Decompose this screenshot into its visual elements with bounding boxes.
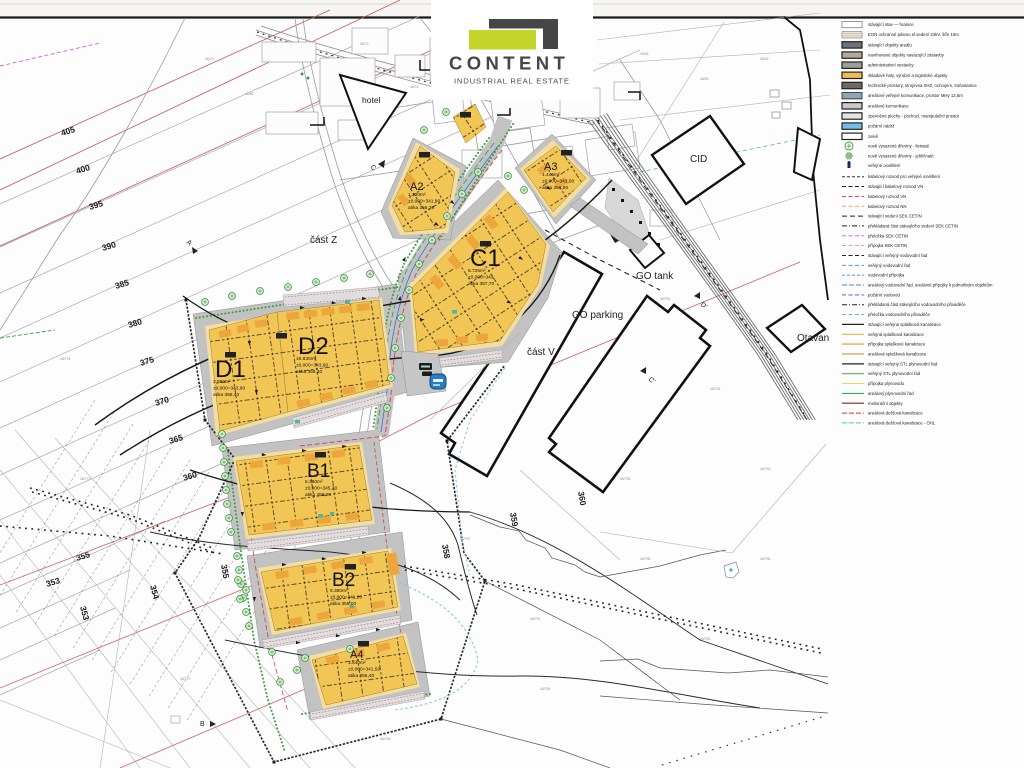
svg-text:atika 355,40: atika 355,40 — [348, 673, 374, 679]
svg-text:hotel: hotel — [362, 95, 381, 105]
svg-text:atika 355,00: atika 355,00 — [330, 601, 356, 607]
svg-text:46/764: 46/764 — [540, 687, 550, 691]
svg-text:stávající stav — hranice: stávající stav — hranice — [868, 22, 914, 27]
svg-text:skladové haly, výrobní a logis: skladové haly, výrobní a logistické obje… — [868, 73, 948, 78]
svg-text:46/64: 46/64 — [640, 52, 649, 56]
svg-text:D1: D1 — [215, 356, 246, 383]
svg-text:areálová dešťová kanalizace -: areálová dešťová kanalizace - OHL — [868, 420, 936, 425]
svg-text:A3: A3 — [544, 161, 557, 173]
svg-text:46/774: 46/774 — [60, 357, 70, 361]
svg-text:B: B — [200, 721, 205, 728]
svg-text:46/757: 46/757 — [460, 537, 470, 541]
svg-text:46/753: 46/753 — [760, 467, 770, 471]
svg-text:část V: část V — [527, 347, 555, 358]
svg-text:5.380m²: 5.380m² — [330, 588, 348, 594]
svg-text:přeložka vodovodního přivaděče: přeložka vodovodního přivaděče — [868, 312, 930, 317]
svg-text:46/770: 46/770 — [180, 677, 190, 681]
svg-text:stávající veřejný STL plynovod: stávající veřejný STL plynovodní řad — [868, 361, 938, 366]
svg-text:veřejný STL plynovodní řad: veřejný STL plynovodní řad — [868, 371, 921, 376]
svg-text:3.540m²: 3.540m² — [348, 660, 366, 666]
svg-text:±0,000=345,20: ±0,000=345,20 — [305, 485, 337, 491]
svg-text:±0,000=343: ±0,000=343 — [468, 274, 494, 280]
svg-text:46/81: 46/81 — [245, 92, 254, 96]
svg-text:INDUSTRIAL REAL ESTATE: INDUSTRIAL REAL ESTATE — [454, 77, 570, 86]
svg-text:vodovodní přípojka: vodovodní přípojka — [868, 273, 905, 278]
svg-text:atika 357,70: atika 357,70 — [468, 281, 494, 287]
svg-text:atika 356,90: atika 356,90 — [542, 185, 568, 191]
svg-text:areálové veřejné komunikace, p: areálové veřejné komunikace, prostor MHy… — [868, 93, 963, 98]
svg-text:technické prostory, strojovna: technické prostory, strojovna SHZ, rozvo… — [868, 83, 977, 88]
svg-text:meliorační objekty: meliorační objekty — [868, 401, 903, 406]
svg-text:atika 358,20: atika 358,20 — [305, 492, 331, 498]
svg-text:46/766: 46/766 — [380, 737, 390, 741]
svg-text:přípojka plynovodu: přípojka plynovodu — [868, 381, 905, 386]
svg-text:kabelový rozvod NN: kabelový rozvod NN — [868, 204, 906, 209]
svg-text:B2: B2 — [332, 570, 355, 591]
svg-text:46/750: 46/750 — [660, 297, 670, 301]
svg-text:požární nádrž: požární nádrž — [868, 124, 894, 129]
svg-text:CONTENT: CONTENT — [449, 53, 569, 74]
svg-text:zpevněné plochy - pochozí, man: zpevněné plochy - pochozí, manipulační p… — [868, 114, 960, 119]
svg-text:zeleň: zeleň — [868, 134, 879, 139]
svg-text:A4: A4 — [350, 649, 363, 661]
svg-text:stávající vedení SEK CETIN: stávající vedení SEK CETIN — [868, 214, 922, 219]
svg-text:GO parking: GO parking — [572, 310, 623, 321]
svg-text:46/74: 46/74 — [410, 85, 419, 89]
svg-text:46/756: 46/756 — [760, 557, 770, 561]
svg-text:6.725m²: 6.725m² — [468, 268, 486, 274]
svg-text:atika 358,40: atika 358,40 — [213, 392, 239, 398]
svg-text:přeložka SEK CETIN: přeložka SEK CETIN — [868, 233, 908, 238]
svg-text:16.830m²: 16.830m² — [296, 356, 317, 362]
svg-text:±0,000=341,50: ±0,000=341,50 — [348, 666, 380, 672]
svg-text:46/63: 46/63 — [700, 77, 709, 81]
svg-text:C1: C1 — [470, 245, 501, 272]
svg-text:1.446m²: 1.446m² — [542, 172, 560, 178]
svg-text:navrhované objekty navazující: navrhované objekty navazující zástavby — [868, 53, 945, 58]
svg-text:kabelový rozvod VN: kabelový rozvod VN — [868, 194, 906, 199]
svg-text:46/758: 46/758 — [640, 557, 650, 561]
svg-text:46/761: 46/761 — [530, 617, 540, 621]
svg-text:stávající veřejný vodovodní řa: stávající veřejný vodovodní řad — [868, 253, 928, 258]
svg-text:±0,000=341,00: ±0,000=341,00 — [330, 594, 362, 600]
svg-text:46/62: 46/62 — [760, 57, 769, 61]
svg-text:±0,000=343,90: ±0,000=343,90 — [213, 385, 245, 391]
svg-text:±0,000=343,90: ±0,000=343,90 — [296, 362, 328, 368]
svg-text:D2: D2 — [298, 333, 329, 360]
svg-text:část Z: část Z — [310, 235, 337, 246]
svg-text:areálové komunikace: areálové komunikace — [868, 103, 909, 108]
svg-text:46/751: 46/751 — [710, 387, 720, 391]
svg-text:atika 358,40: atika 358,40 — [296, 369, 322, 375]
svg-text:46/755: 46/755 — [620, 477, 630, 481]
svg-text:nově vysazené dřeviny - listna: nově vysazené dřeviny - listnaté — [868, 144, 930, 149]
svg-text:stávající kabelový rozvod VN: stávající kabelový rozvod VN — [868, 184, 923, 189]
svg-text:stávající objekty areálu: stávající objekty areálu — [868, 42, 912, 47]
svg-text:areálová dešťová kanalizace: areálová dešťová kanalizace — [868, 411, 923, 416]
svg-text:46/772: 46/772 — [80, 477, 90, 481]
svg-text:stávající veřejná splašková ka: stávající veřejná splašková kanalizace — [868, 322, 941, 327]
svg-text:B1: B1 — [307, 461, 330, 482]
svg-text:veřejné osvětlení: veřejné osvětlení — [868, 163, 901, 168]
svg-text:±0,000=343,00: ±0,000=343,00 — [542, 178, 574, 184]
svg-text:areálový vodovodní řad, areálo: areálový vodovodní řad, areálové přípojk… — [868, 283, 993, 288]
svg-text:Otavan: Otavan — [797, 333, 829, 344]
svg-text:veřejná splašková kanalizace: veřejná splašková kanalizace — [868, 332, 925, 337]
svg-text:±0,000=341,90: ±0,000=341,90 — [408, 198, 440, 204]
svg-text:A2: A2 — [410, 181, 423, 193]
svg-text:areálová splašková kanalizace: areálová splašková kanalizace — [868, 352, 927, 357]
svg-text:přípojka splaškové kanalizace: přípojka splaškové kanalizace — [868, 342, 926, 347]
svg-text:přípojka SEK CETIN: přípojka SEK CETIN — [868, 243, 907, 248]
svg-text:atika 356,30: atika 356,30 — [408, 205, 434, 211]
svg-text:nově vysazené dřeviny - jehlič: nově vysazené dřeviny - jehličnaté — [868, 153, 934, 158]
svg-text:areálový plynovodní řad: areálový plynovodní řad — [868, 391, 914, 396]
svg-text:EON ochranné pásmo el.vedení 2: EON ochranné pásmo el.vedení 22kV, šíře … — [868, 32, 959, 37]
svg-text:veřejný vodovodní řad: veřejný vodovodní řad — [868, 263, 911, 268]
svg-text:požární vodovod: požární vodovod — [868, 292, 900, 297]
svg-text:CID: CID — [690, 154, 707, 165]
svg-text:1.220m²: 1.220m² — [408, 192, 426, 198]
svg-text:46/760: 46/760 — [700, 637, 710, 641]
svg-text:46/72: 46/72 — [360, 42, 369, 46]
svg-text:5.380m²: 5.380m² — [305, 479, 323, 485]
svg-text:kabelový rozvod pro veřejné os: kabelový rozvod pro veřejné osvětlení — [868, 174, 941, 179]
svg-text:administrativní vestavky: administrativní vestavky — [868, 63, 914, 68]
svg-text:překládaná část stávajícího ve: překládaná část stávajícího vedení SEK C… — [868, 223, 958, 228]
svg-text:překládaná část stávajícího vo: překládaná část stávajícího vodovodního … — [868, 302, 966, 307]
svg-text:46/79: 46/79 — [205, 57, 214, 61]
svg-text:2.980m²: 2.980m² — [213, 379, 231, 385]
